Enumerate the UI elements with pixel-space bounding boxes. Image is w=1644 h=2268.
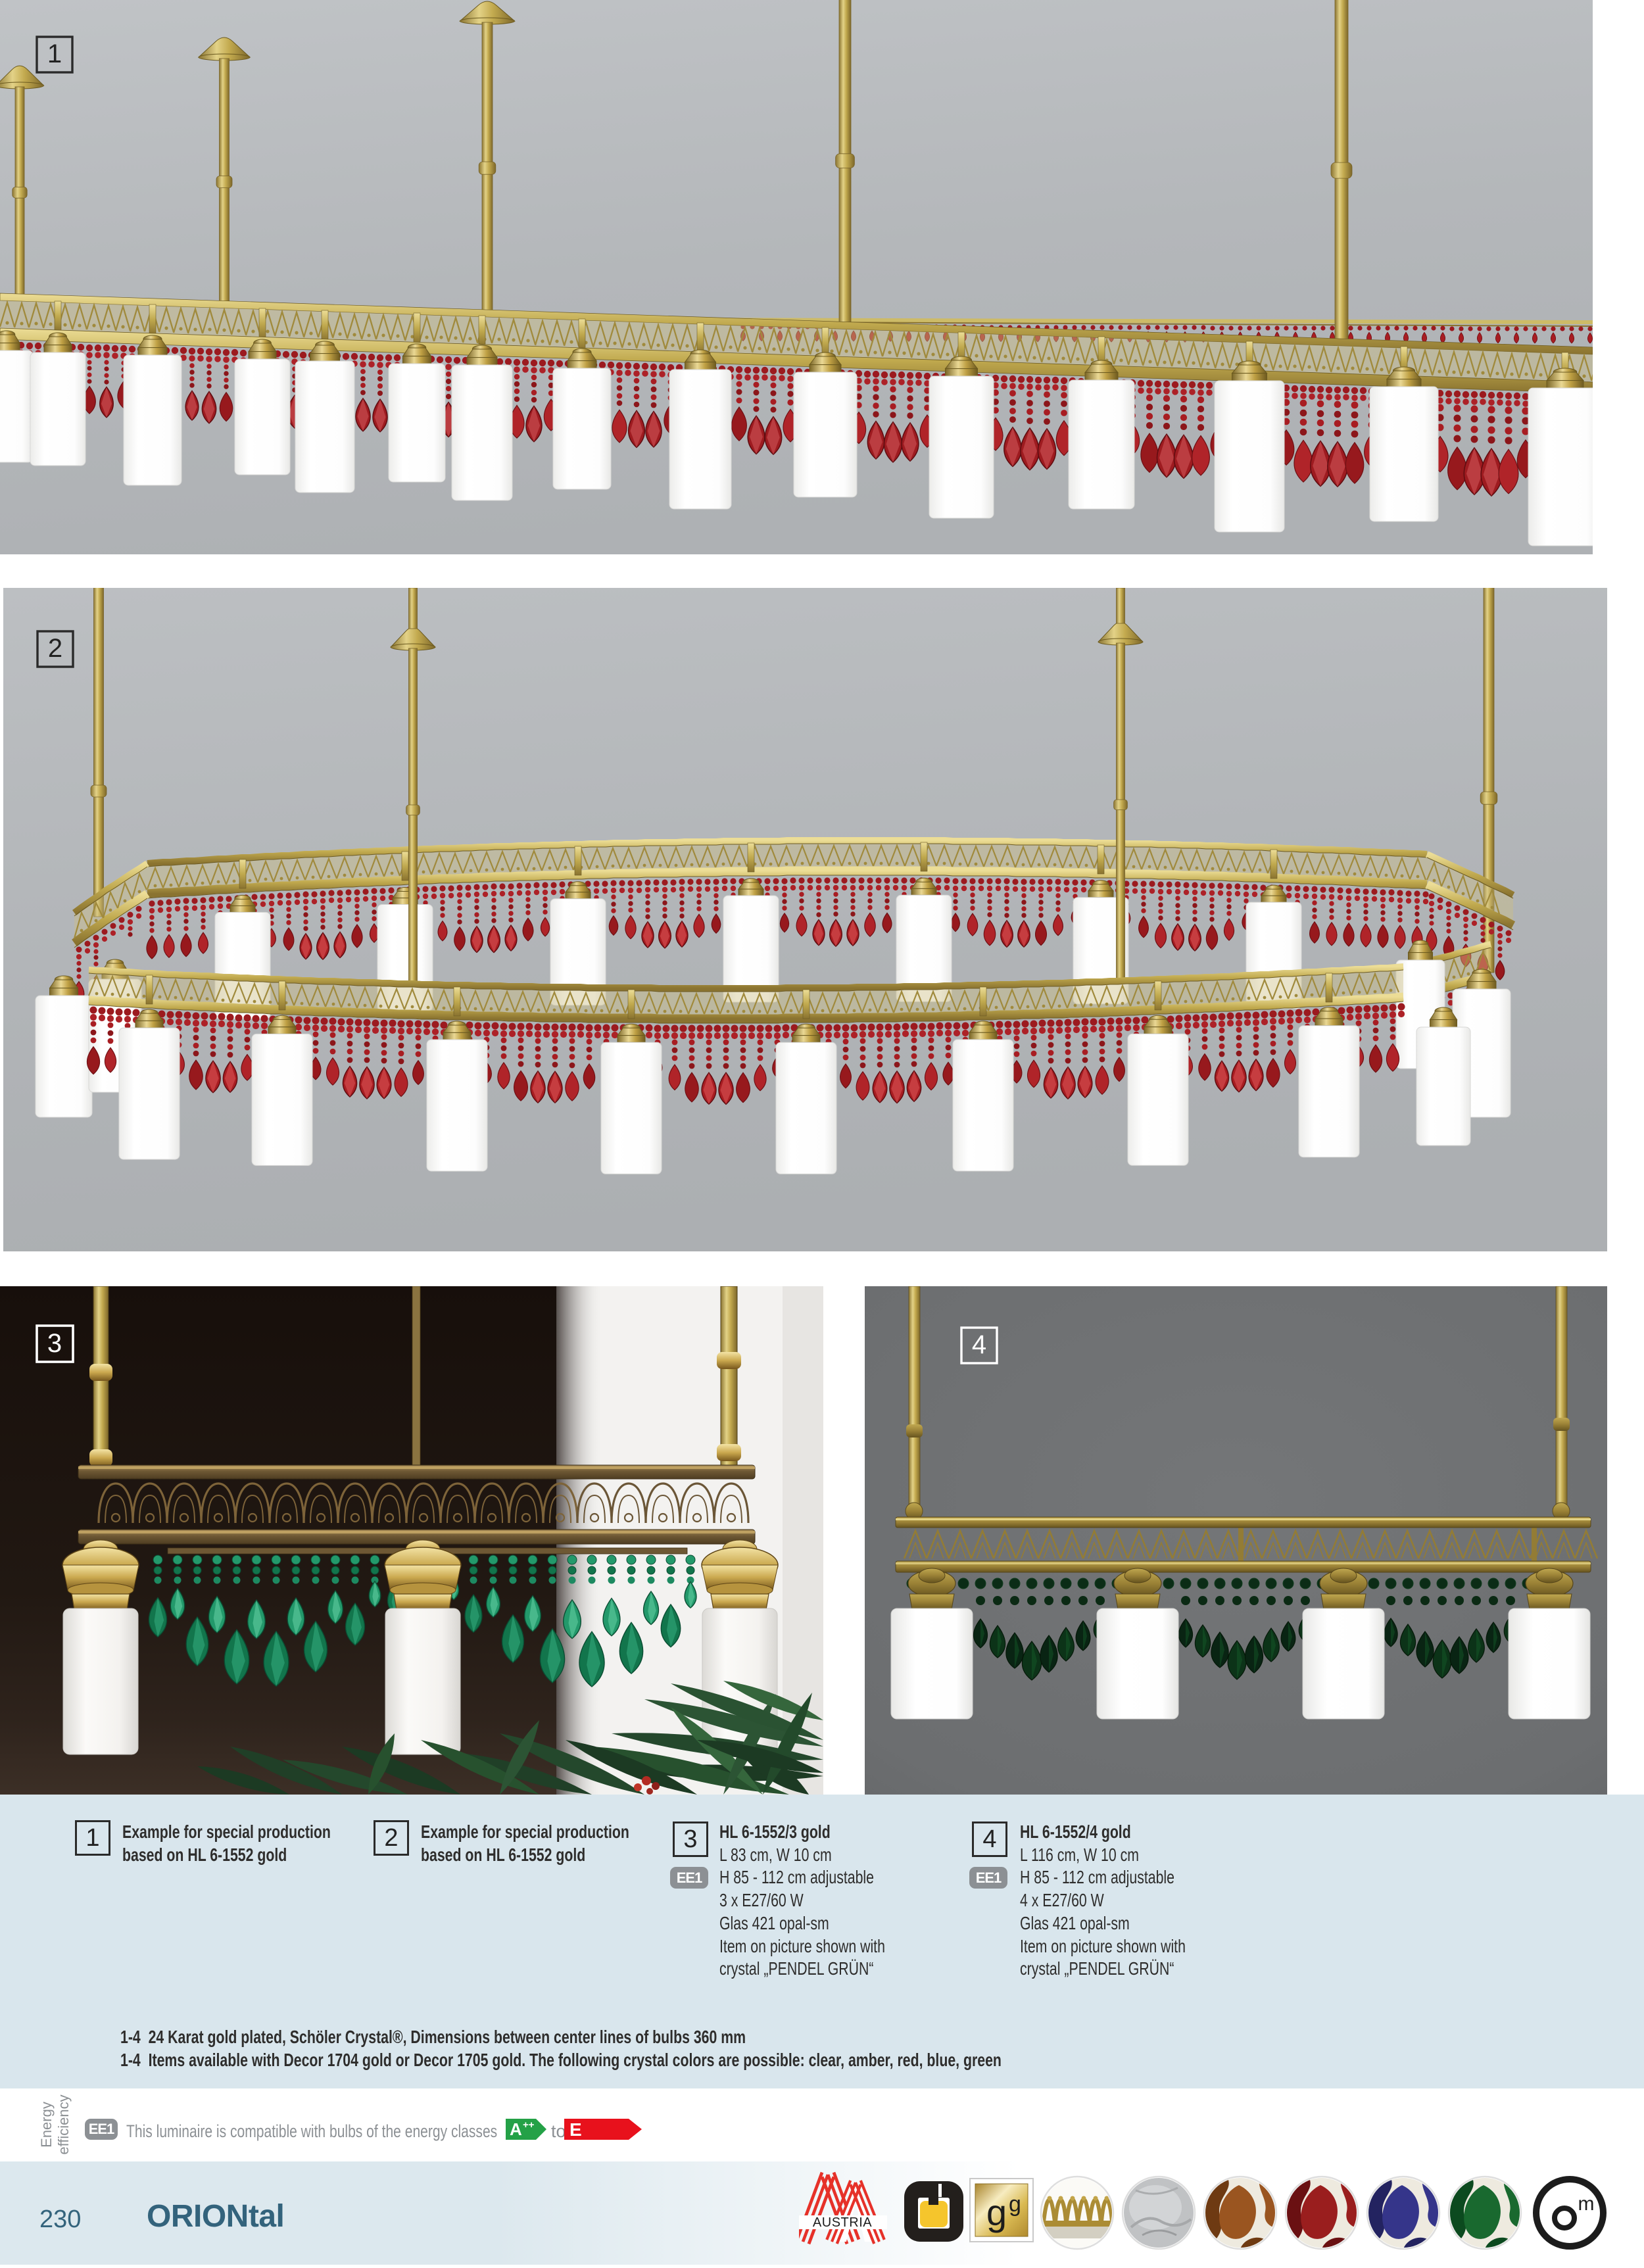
svg-text:AUSTRIA: AUSTRIA (813, 2215, 872, 2230)
svg-text:3: 3 (47, 1329, 62, 1358)
svg-text:m: m (1578, 2193, 1595, 2215)
svg-text:++: ++ (523, 2119, 535, 2131)
svg-text:g: g (1009, 2192, 1021, 2217)
svg-text:1: 1 (47, 39, 62, 68)
svg-text:E: E (569, 2119, 582, 2140)
svg-text:4: 4 (972, 1330, 986, 1359)
svg-text:2: 2 (48, 634, 62, 663)
svg-text:A: A (510, 2119, 522, 2139)
svg-text:g: g (986, 2192, 1007, 2233)
